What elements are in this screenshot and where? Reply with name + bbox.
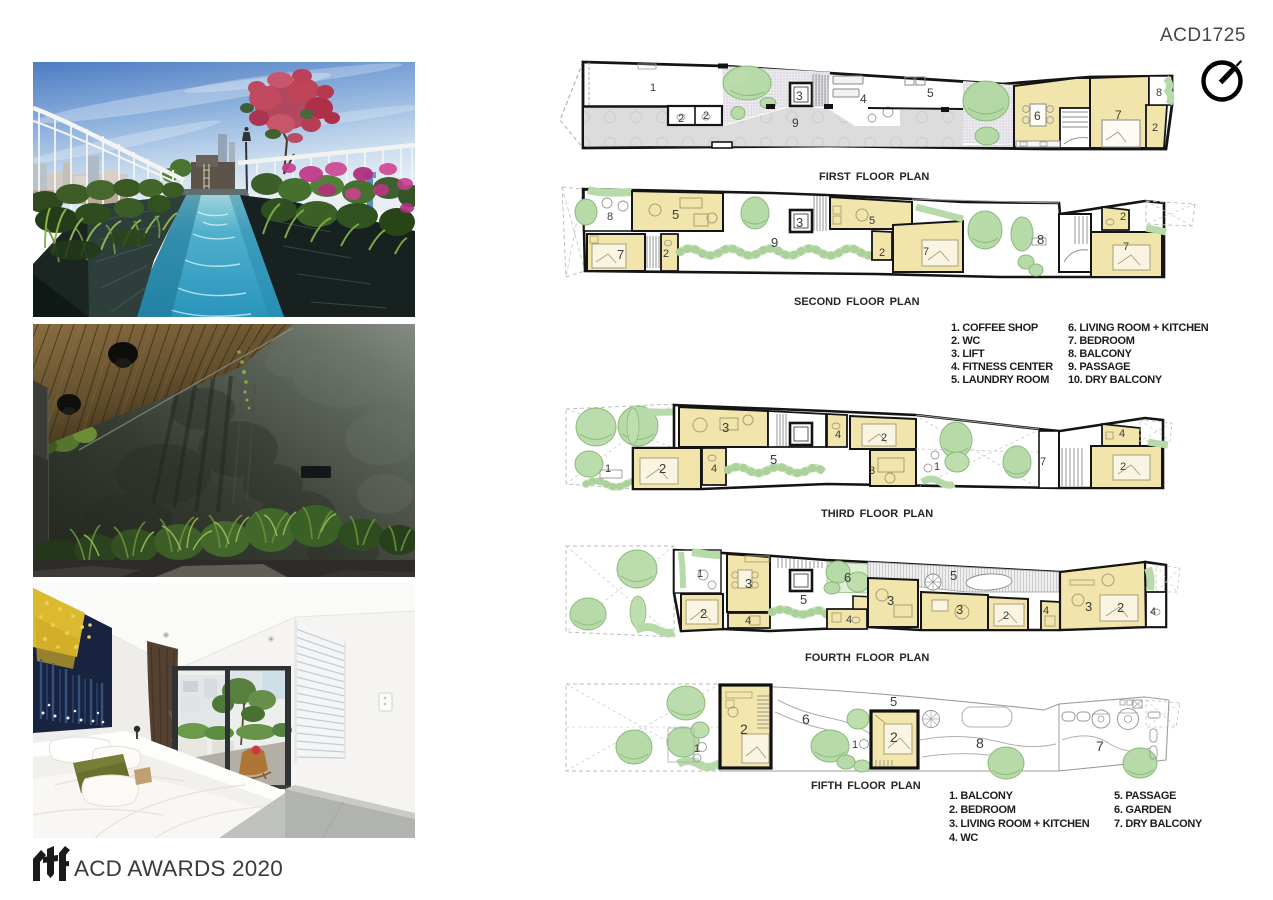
svg-text:1: 1 [694, 743, 700, 755]
svg-text:7: 7 [1040, 456, 1046, 468]
svg-text:8: 8 [1037, 232, 1044, 247]
svg-text:2: 2 [740, 721, 748, 737]
svg-text:5: 5 [890, 694, 897, 709]
svg-text:3: 3 [796, 89, 803, 103]
svg-text:4: 4 [1119, 428, 1125, 440]
svg-text:2: 2 [663, 248, 669, 260]
svg-text:6: 6 [844, 570, 851, 585]
svg-text:7: 7 [1096, 738, 1104, 754]
svg-text:3: 3 [745, 576, 752, 591]
svg-text:4: 4 [1150, 606, 1156, 618]
svg-text:5: 5 [672, 207, 679, 222]
svg-text:9: 9 [792, 116, 799, 130]
svg-text:3: 3 [1085, 599, 1092, 614]
svg-text:8: 8 [607, 211, 613, 223]
svg-text:7: 7 [1115, 108, 1122, 122]
svg-text:2: 2 [700, 606, 707, 621]
svg-text:9: 9 [771, 235, 778, 250]
svg-text:5: 5 [950, 568, 957, 583]
svg-text:8: 8 [1156, 87, 1162, 99]
svg-text:2: 2 [1120, 461, 1126, 473]
svg-text:1: 1 [650, 82, 656, 94]
svg-text:6: 6 [802, 711, 810, 727]
svg-text:3: 3 [796, 215, 803, 230]
svg-text:2: 2 [1117, 600, 1124, 615]
svg-text:2: 2 [1120, 211, 1126, 223]
svg-text:2: 2 [703, 110, 709, 122]
svg-text:3: 3 [722, 420, 729, 435]
svg-text:4: 4 [860, 92, 867, 106]
svg-text:1: 1 [852, 739, 858, 751]
svg-text:2: 2 [890, 729, 898, 745]
svg-text:2: 2 [1152, 122, 1158, 134]
svg-text:2: 2 [881, 432, 887, 444]
svg-text:4: 4 [711, 463, 717, 475]
svg-text:2: 2 [879, 247, 885, 259]
svg-text:3: 3 [869, 465, 875, 477]
svg-text:5: 5 [869, 215, 875, 227]
svg-text:2: 2 [678, 113, 684, 125]
svg-text:4: 4 [835, 429, 841, 441]
svg-text:3: 3 [887, 593, 894, 608]
svg-text:7: 7 [617, 247, 624, 262]
svg-text:5: 5 [770, 452, 777, 467]
svg-text:1: 1 [605, 463, 611, 475]
svg-text:7: 7 [923, 246, 929, 258]
svg-text:1: 1 [934, 461, 940, 473]
svg-text:6: 6 [1034, 109, 1041, 123]
svg-text:4: 4 [846, 614, 852, 626]
svg-text:2: 2 [1003, 610, 1009, 622]
svg-text:5: 5 [800, 592, 807, 607]
svg-text:3: 3 [956, 602, 963, 617]
svg-text:4: 4 [1043, 605, 1049, 617]
svg-text:7: 7 [1123, 241, 1129, 253]
svg-text:1: 1 [697, 568, 703, 580]
svg-text:5: 5 [927, 86, 934, 100]
svg-text:8: 8 [976, 735, 984, 751]
svg-text:4: 4 [745, 615, 751, 627]
svg-text:2: 2 [659, 461, 666, 476]
